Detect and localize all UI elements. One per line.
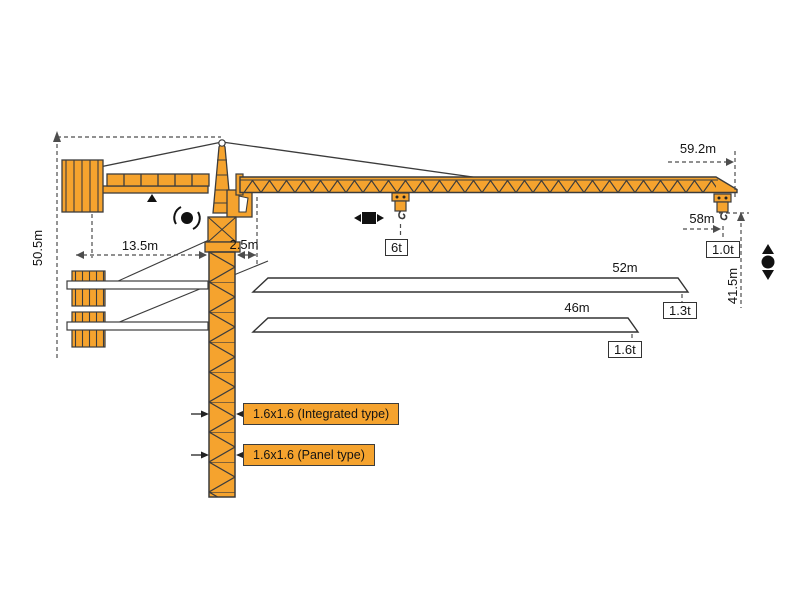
trolley-travel-icon [354, 212, 384, 224]
trolley-hook-mid [392, 193, 409, 219]
load-1-0t-badge: 1.0t [706, 241, 740, 258]
ballast-variant-2 [67, 312, 208, 347]
variant-52m-label: 52m [600, 260, 650, 275]
jib [236, 174, 737, 195]
jib-outline-46m [253, 318, 638, 332]
ballast-variant-1 [67, 271, 208, 306]
hoisting-icon [762, 244, 775, 280]
hook-height-label: 41.5m [725, 261, 741, 311]
counter-jib-pointer-icon [147, 194, 157, 202]
mast [209, 252, 235, 497]
load-1-6t-badge: 1.6t [608, 341, 642, 358]
total-height-label: 50.5m [30, 223, 46, 273]
jib-offset-dim-label: 2.5m [224, 237, 264, 252]
crane-drawing [0, 0, 800, 600]
crane-diagram: 50.5m 13.5m 2.5m 59.2m 58m 41.5m 6t 1.0t… [0, 0, 800, 600]
tip-radius-dim-label: 59.2m [670, 141, 726, 156]
load-1-3t-badge: 1.3t [663, 302, 697, 319]
mast-type-integrated-tag: 1.6x1.6 (Integrated type) [243, 403, 399, 425]
slewing-icon [174, 207, 199, 229]
load-6t-badge: 6t [385, 239, 408, 256]
mast-type-panel-tag: 1.6x1.6 (Panel type) [243, 444, 375, 466]
max-radius-dim-label: 58m [682, 211, 722, 226]
variant-46m-label: 46m [552, 300, 602, 315]
counterweight-block [62, 160, 103, 212]
jib-outline-52m [253, 278, 688, 292]
counter-jib-dim-label: 13.5m [95, 238, 185, 253]
